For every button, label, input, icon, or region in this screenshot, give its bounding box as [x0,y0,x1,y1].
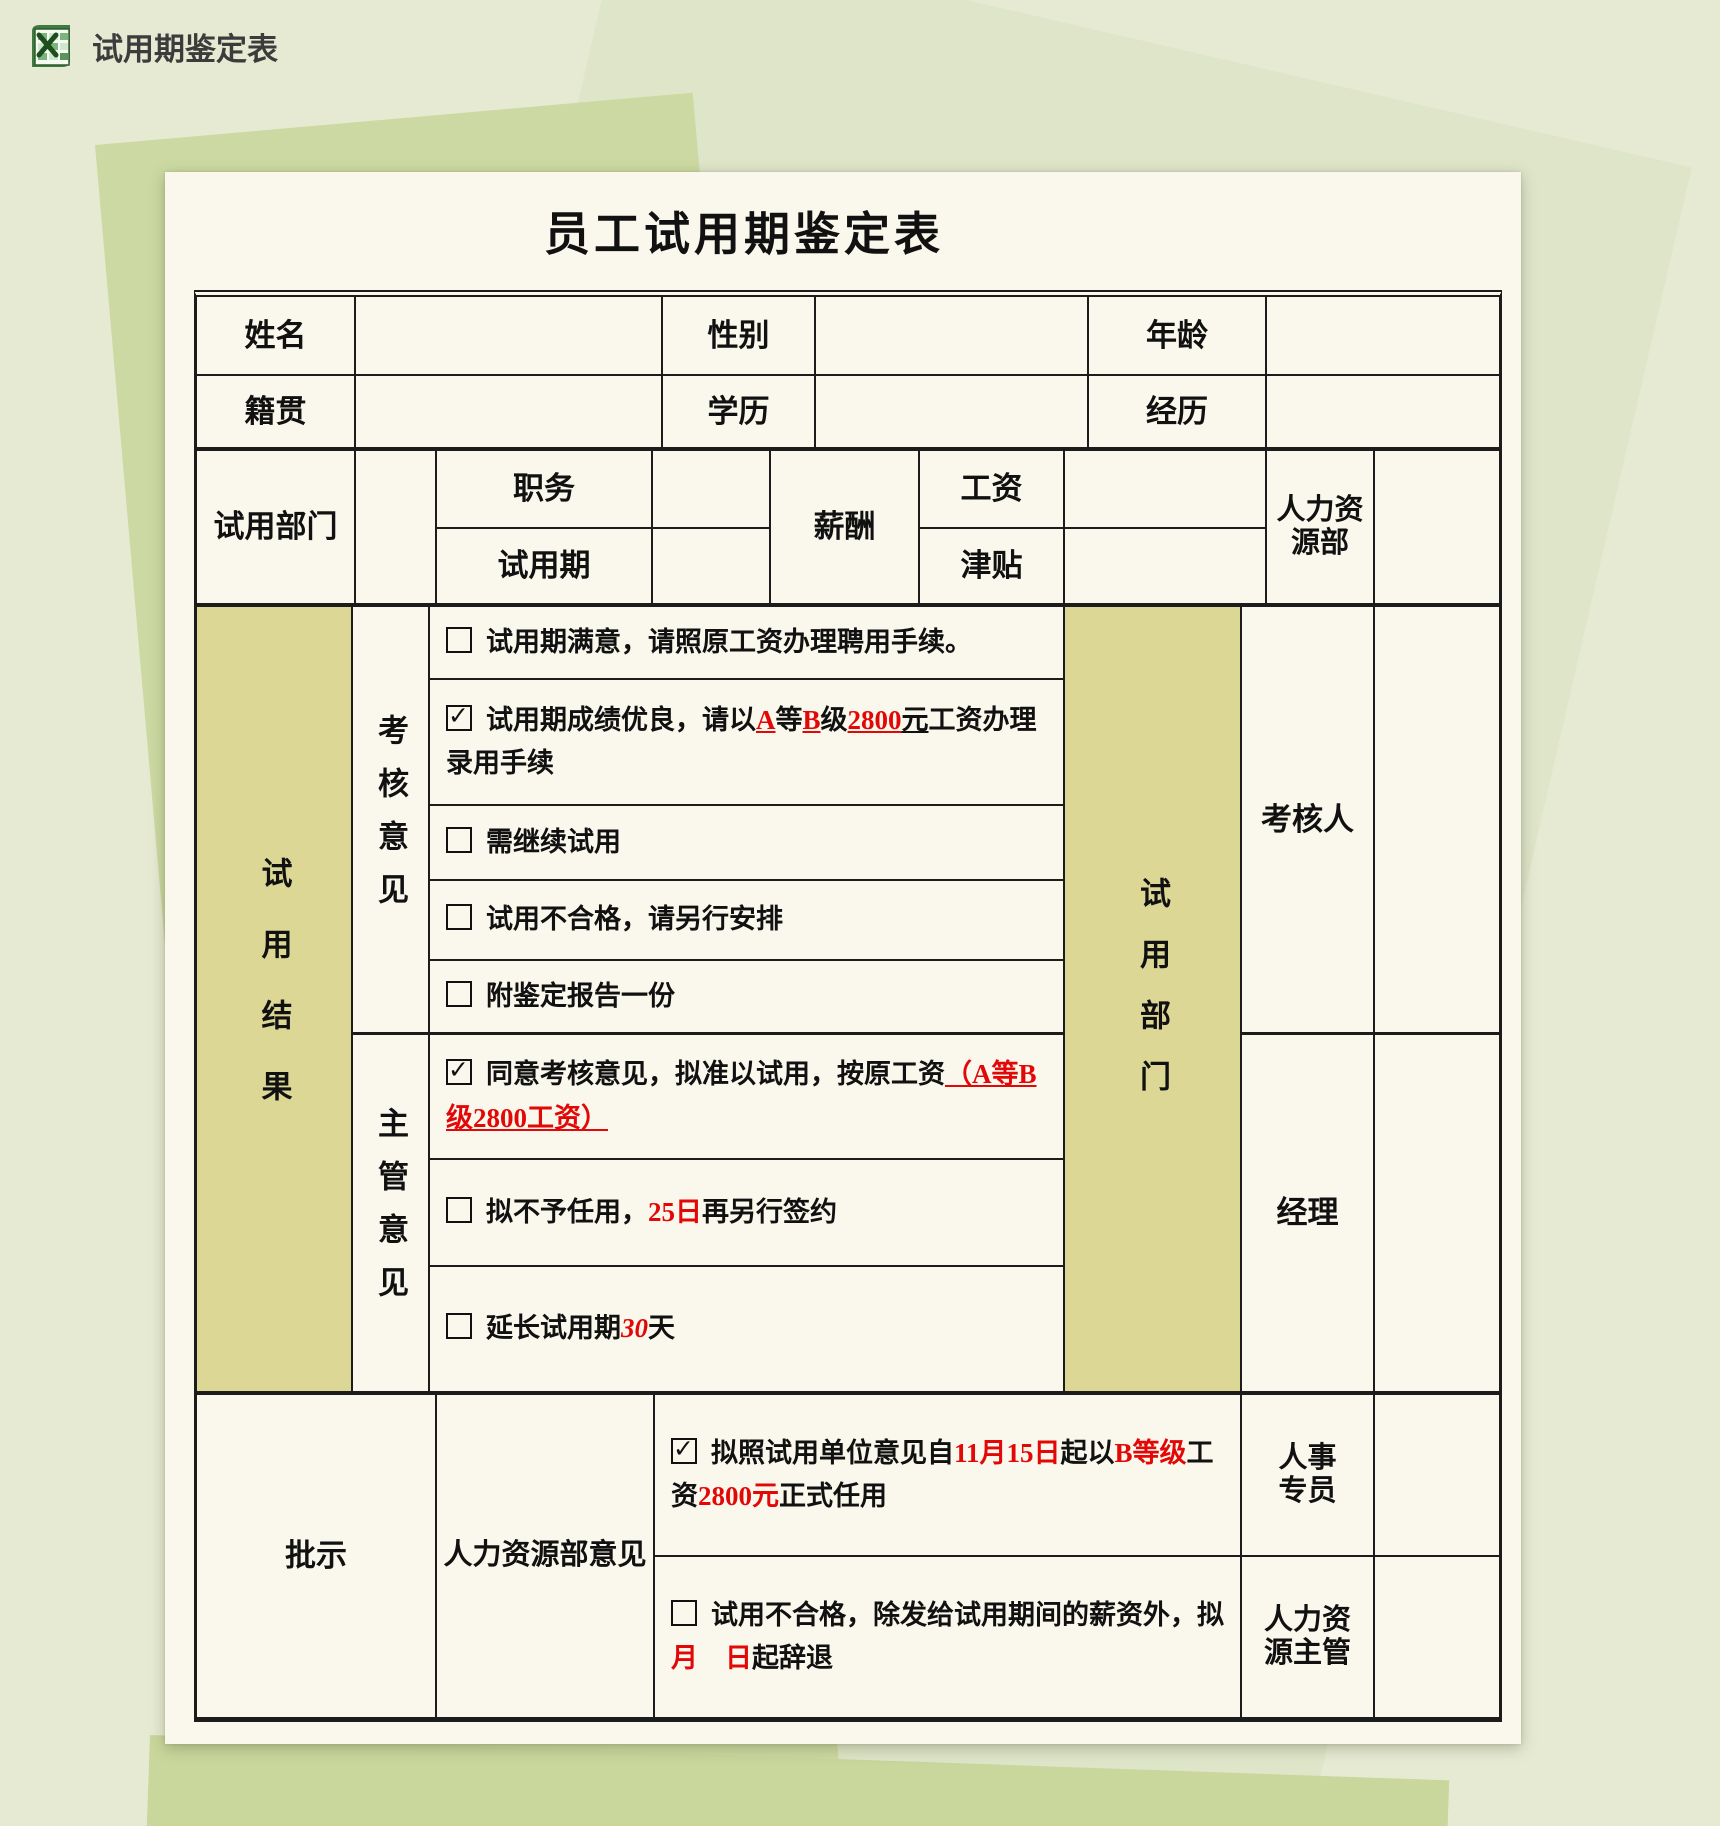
hr-opinion-label: 人力资源部意见 [435,1391,653,1717]
assess-option-5-text: 附鉴定报告一份 [486,981,675,1011]
assess-option-4[interactable]: 试用不合格，请另行安排 [428,879,1063,959]
wage-label: 工资 [918,447,1063,527]
hr-dept-label: 人力资源部 [1265,447,1373,603]
position-label: 职务 [435,447,651,527]
hr-manager-label: 人力资源主管 [1240,1555,1373,1717]
hr-dept-sign-cell[interactable] [1373,447,1499,603]
assess-option-5[interactable]: 附鉴定报告一份 [428,959,1063,1032]
assessor-sign-cell[interactable] [1373,603,1499,1032]
supervisor-opinion-label: 主管意见 [351,1032,428,1391]
probation-period-value-cell[interactable] [651,527,769,603]
approval-label: 批示 [197,1391,435,1717]
name-label: 姓名 [197,297,354,374]
salary-label: 薪酬 [769,447,918,603]
probation-dept-vertical-label: 试用部门 [1063,603,1240,1391]
probation-dept-value-cell[interactable] [354,447,435,603]
result-row-label: 试用结果 [197,603,351,1391]
checkbox-icon[interactable] [446,1197,472,1223]
checkbox-icon[interactable] [446,1059,472,1085]
page-background: 试用期鉴定表 员工试用期鉴定表 姓名 性别 年龄 籍贯 学历 经历 试用部门 职… [0,0,1720,1826]
assess-option-3[interactable]: 需继续试用 [428,804,1063,879]
allowance-value-cell[interactable] [1063,527,1265,603]
name-value-cell[interactable] [354,297,661,374]
form-title: 员工试用期鉴定表 [194,198,1294,264]
approval-option-2[interactable]: 试用不合格，除发给试用期间的薪资外，拟月 日起辞退 [653,1555,1240,1717]
assess-option-2[interactable]: 试用期成绩优良，请以A等B级2800元工资办理录用手续 [428,678,1063,804]
gender-value-cell[interactable] [814,297,1087,374]
age-value-cell[interactable] [1265,297,1499,374]
checkbox-icon[interactable] [446,1313,472,1339]
supervisor-option-1[interactable]: 同意考核意见，拟准以试用，按原工资（A等B级2800工资） [428,1032,1063,1158]
assess-option-1-text: 试用期满意，请照原工资办理聘用手续。 [486,627,972,657]
checkbox-icon[interactable] [446,627,472,653]
hr-manager-sign-cell[interactable] [1373,1555,1499,1717]
supervisor-option-2[interactable]: 拟不予任用，25日再另行签约 [428,1158,1063,1265]
supervisor-option-2-text: 拟不予任用，25日再另行签约 [486,1197,837,1227]
origin-value-cell[interactable] [354,374,661,447]
education-value-cell[interactable] [814,374,1087,447]
approval-option-2-text: 试用不合格，除发给试用期间的薪资外，拟月 日起辞退 [671,1600,1224,1673]
excel-icon [26,21,76,71]
gender-label: 性别 [661,297,814,374]
hr-specialist-label: 人事专员 [1240,1391,1373,1555]
manager-label: 经理 [1240,1032,1373,1391]
approval-option-1-text: 拟照试用单位意见自11月15日起以B等级工资2800元正式任用 [671,1438,1214,1511]
supervisor-option-1-text: 同意考核意见，拟准以试用，按原工资（A等B级2800工资） [446,1059,1037,1132]
position-value-cell[interactable] [651,447,769,527]
form-table: 姓名 性别 年龄 籍贯 学历 经历 试用部门 职务 试用期 薪酬 工资 津贴 人… [194,290,1502,1722]
manager-sign-cell[interactable] [1373,1032,1499,1391]
assess-option-3-text: 需继续试用 [486,827,621,857]
checkbox-icon[interactable] [671,1600,697,1626]
supervisor-option-3[interactable]: 延长试用期30天 [428,1265,1063,1391]
supervisor-option-3-text: 延长试用期30天 [486,1313,675,1343]
probation-dept-label: 试用部门 [197,447,354,603]
assessor-label: 考核人 [1240,603,1373,1032]
wage-value-cell[interactable] [1063,447,1265,527]
checkbox-icon[interactable] [446,705,472,731]
checkbox-icon[interactable] [446,827,472,853]
education-label: 学历 [661,374,814,447]
allowance-label: 津贴 [918,527,1063,603]
app-title: 试用期鉴定表 [92,24,278,69]
experience-label: 经历 [1087,374,1265,447]
checkbox-icon[interactable] [446,981,472,1007]
assess-option-2-text: 试用期成绩优良，请以A等B级2800元工资办理录用手续 [446,705,1037,778]
assess-option-1[interactable]: 试用期满意，请照原工资办理聘用手续。 [428,603,1063,678]
app-header: 试用期鉴定表 [26,18,278,74]
hr-specialist-sign-cell[interactable] [1373,1391,1499,1555]
assess-opinion-label: 考核意见 [351,603,428,1032]
age-label: 年龄 [1087,297,1265,374]
assess-option-4-text: 试用不合格，请另行安排 [486,904,783,934]
experience-value-cell[interactable] [1265,374,1499,447]
approval-option-1[interactable]: 拟照试用单位意见自11月15日起以B等级工资2800元正式任用 [653,1391,1240,1555]
probation-period-label: 试用期 [435,527,651,603]
checkbox-icon[interactable] [446,904,472,930]
checkbox-icon[interactable] [671,1438,697,1464]
origin-label: 籍贯 [197,374,354,447]
